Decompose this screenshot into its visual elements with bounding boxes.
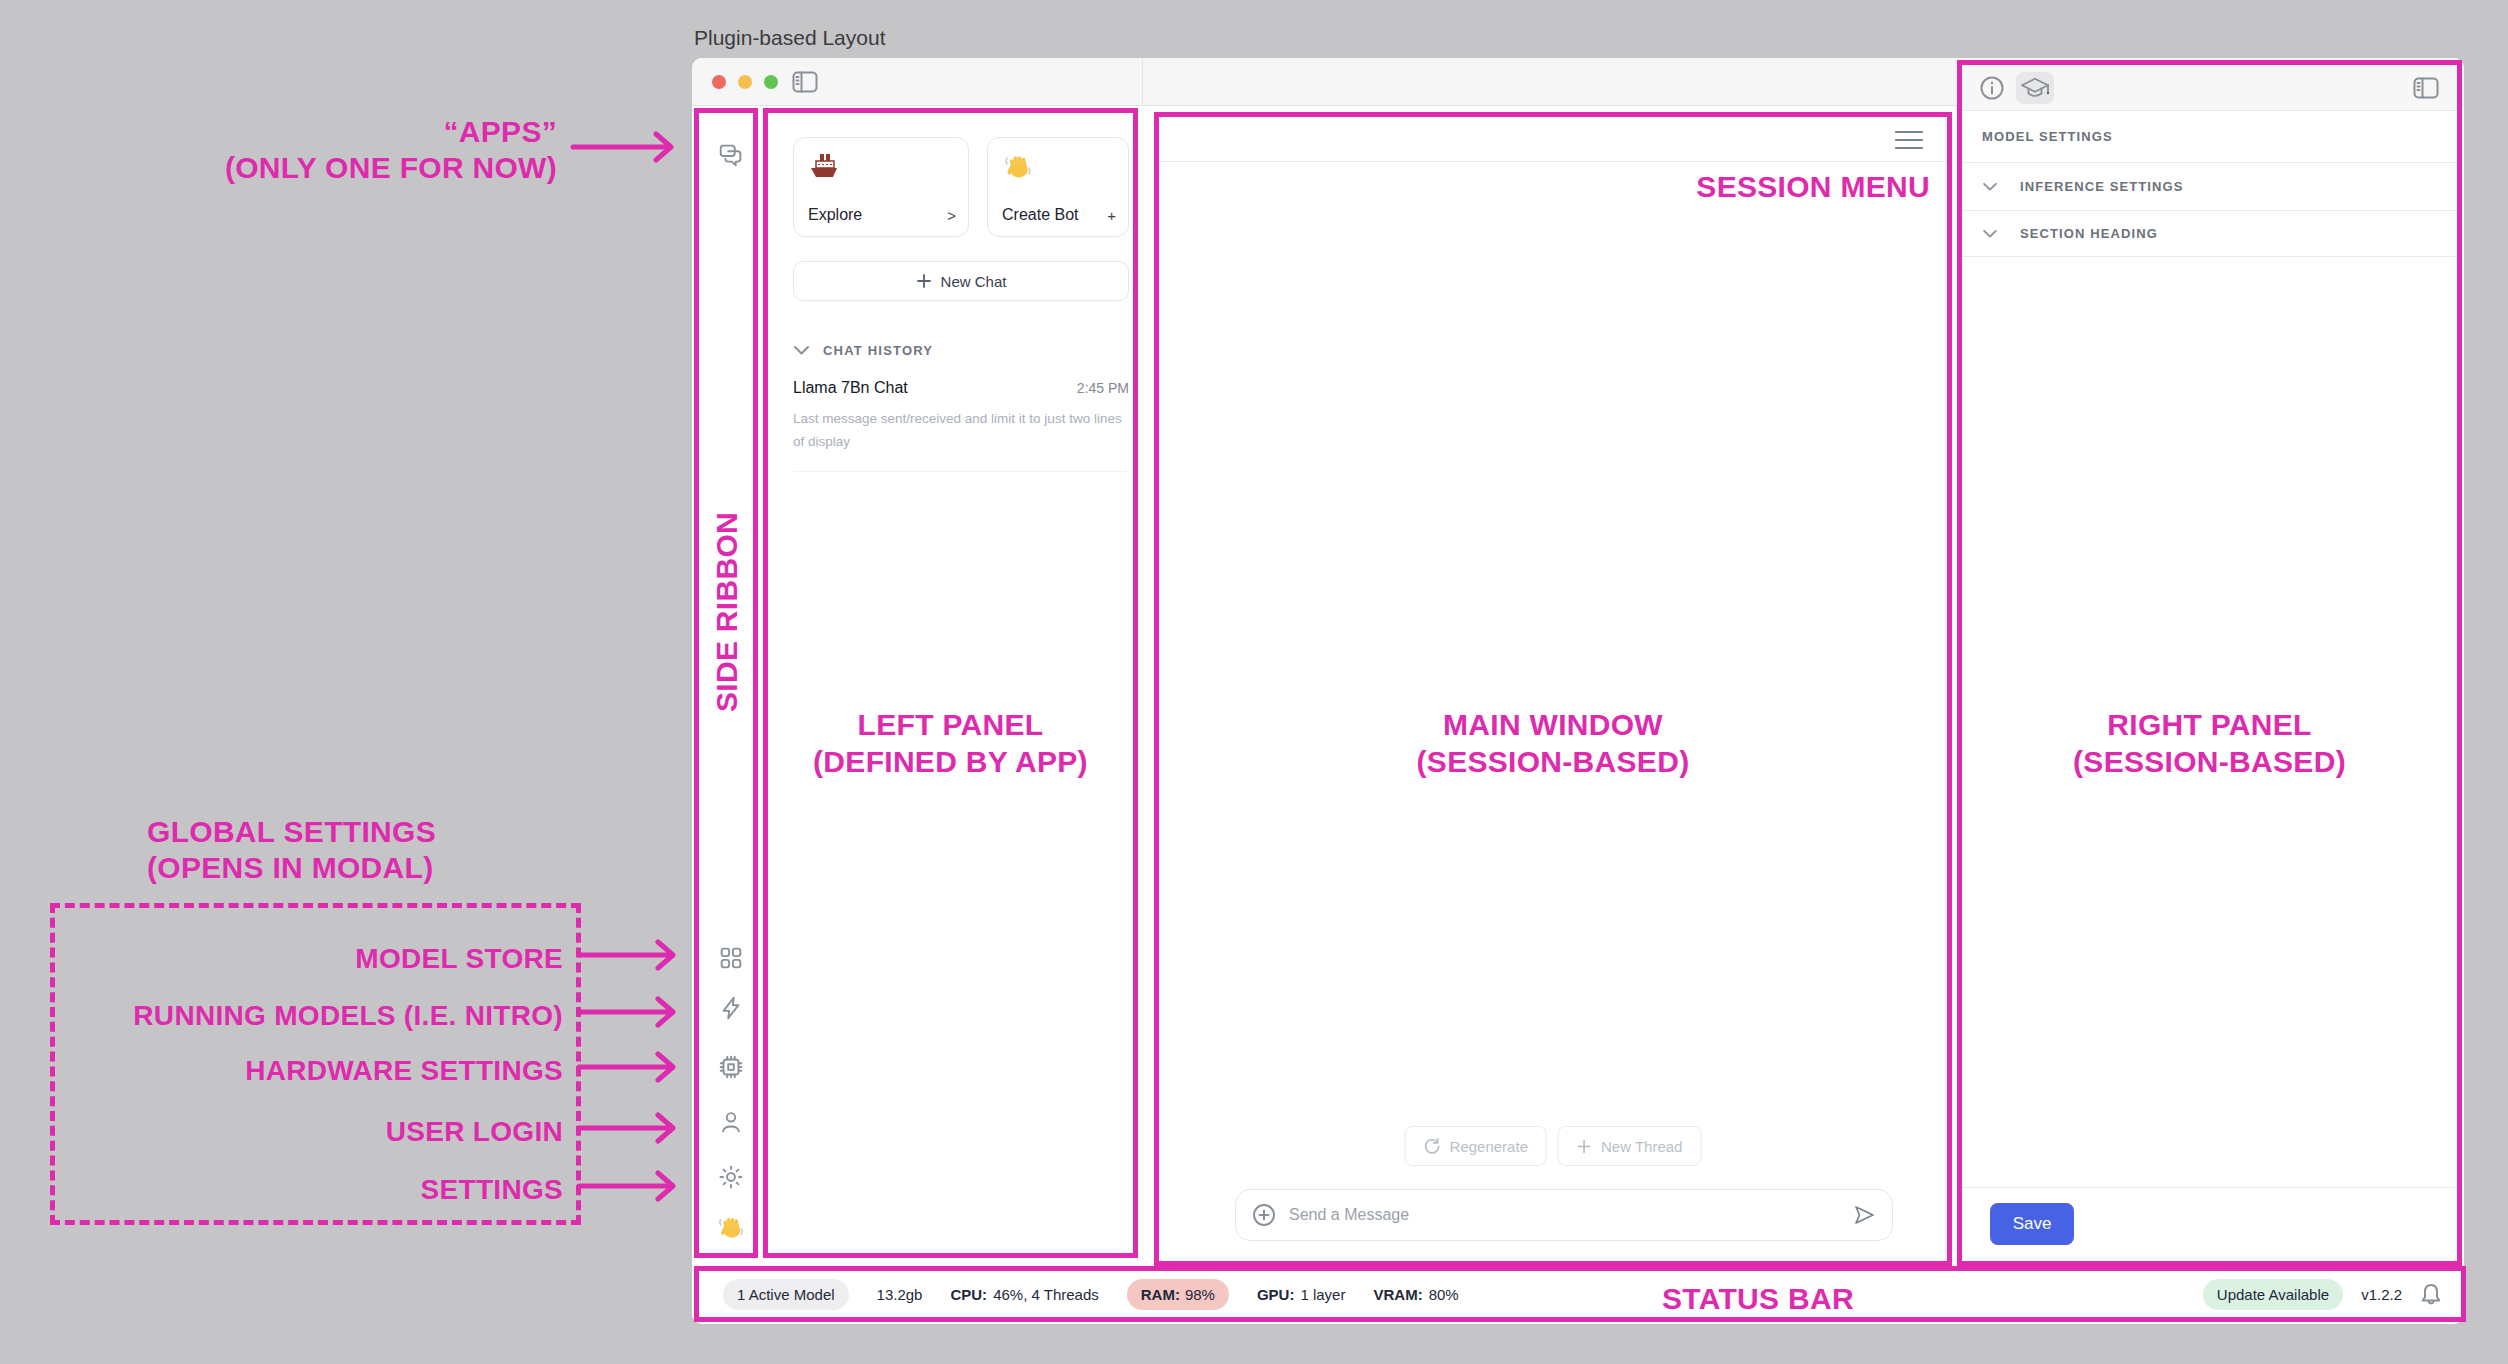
annotation-global-line2: (OPENS IN MODAL)	[147, 850, 436, 886]
new-thread-button[interactable]: New Thread	[1558, 1126, 1701, 1166]
send-icon[interactable]	[1852, 1203, 1876, 1227]
explore-card-label: Explore	[808, 206, 862, 224]
save-area-divider	[1962, 1187, 2457, 1188]
annotation-session-menu: SESSION MENU	[1696, 168, 1930, 205]
refresh-icon	[1424, 1138, 1441, 1155]
annotation-settings: SETTINGS	[421, 1171, 563, 1208]
create-bot-card-label: Create Bot	[1002, 206, 1078, 224]
main-window: Regenerate New Thread	[1154, 112, 1952, 1266]
titlebar-divider	[1142, 58, 1143, 106]
annotation-arrow-user-login	[576, 1112, 690, 1144]
annotation-right-panel: RIGHT PANEL (SESSION-BASED)	[1957, 706, 2462, 780]
cpu-label: CPU:	[950, 1286, 987, 1303]
main-header-divider	[1159, 161, 1947, 162]
save-button[interactable]: Save	[1990, 1203, 2074, 1245]
explore-card[interactable]: Explore >	[793, 137, 969, 237]
page-title: Plugin-based Layout	[694, 26, 885, 50]
annotation-left-panel-line2: (DEFINED BY APP)	[763, 743, 1138, 780]
version-label: v1.2.2	[2361, 1286, 2402, 1303]
annotation-user-login: USER LOGIN	[386, 1113, 563, 1150]
annotation-main-window-line1: MAIN WINDOW	[1154, 706, 1952, 743]
wave-emoji-icon[interactable]	[716, 1212, 746, 1242]
ram-badge: RAM: 98%	[1127, 1279, 1229, 1310]
attach-plus-icon[interactable]	[1252, 1203, 1276, 1227]
chat-item-preview: Last message sent/received and limit it …	[793, 407, 1129, 453]
info-icon[interactable]	[1979, 75, 2005, 101]
model-settings-section: MODEL SETTINGS	[1962, 111, 2457, 163]
chevron-down-icon	[793, 345, 810, 356]
gpu-value: 1 layer	[1300, 1286, 1345, 1303]
close-traffic-light[interactable]	[712, 75, 726, 89]
section-heading-row[interactable]: SECTION HEADING	[1962, 211, 2457, 257]
section-heading-label: SECTION HEADING	[2020, 226, 2158, 241]
regenerate-label: Regenerate	[1450, 1138, 1528, 1155]
user-login-icon[interactable]	[716, 1107, 746, 1137]
running-models-icon[interactable]	[716, 993, 746, 1023]
annotation-main-window: MAIN WINDOW (SESSION-BASED)	[1154, 706, 1952, 780]
vram-stat: VRAM: 80%	[1373, 1286, 1458, 1303]
cpu-value: 46%, 4 Threads	[993, 1286, 1099, 1303]
annotation-hardware-settings: HARDWARE SETTINGS	[245, 1052, 563, 1089]
design-canvas: Plugin-based Layout	[0, 0, 2508, 1364]
annotation-arrow-model-store	[576, 939, 690, 971]
list-divider	[793, 471, 1129, 472]
annotation-arrow-running-models	[576, 996, 690, 1028]
annotation-arrow-hardware	[576, 1051, 690, 1083]
annotation-main-window-line2: (SESSION-BASED)	[1154, 743, 1952, 780]
annotation-global-settings: GLOBAL SETTINGS (OPENS IN MODAL)	[147, 814, 436, 886]
plus-icon	[1577, 1139, 1592, 1154]
chat-app-icon[interactable]	[716, 140, 746, 170]
inference-settings-label: INFERENCE SETTINGS	[2020, 179, 2184, 194]
annotation-running-models: RUNNING MODELS (I.E. NITRO)	[133, 997, 563, 1034]
annotation-arrow-apps	[570, 131, 688, 163]
chat-history-header[interactable]: CHAT HISTORY	[793, 343, 933, 358]
sidebar-toggle-icon[interactable]	[792, 71, 818, 93]
maximize-traffic-light[interactable]	[764, 75, 778, 89]
chat-item-title: Llama 7Bn Chat	[793, 379, 908, 397]
message-input[interactable]	[1289, 1206, 1839, 1224]
settings-gear-icon[interactable]	[716, 1162, 746, 1192]
annotation-global-line1: GLOBAL SETTINGS	[147, 814, 436, 850]
ram-label: RAM:	[1141, 1286, 1180, 1303]
message-composer	[1235, 1189, 1893, 1241]
notifications-bell-icon[interactable]	[2420, 1282, 2442, 1306]
session-menu-icon[interactable]	[1895, 130, 1923, 150]
gpu-stat: GPU: 1 layer	[1257, 1286, 1346, 1303]
cpu-stat: CPU: 46%, 4 Threads	[950, 1286, 1098, 1303]
regenerate-button[interactable]: Regenerate	[1405, 1126, 1547, 1166]
active-model-badge[interactable]: 1 Active Model	[723, 1279, 849, 1310]
memory-usage: 13.2gb	[877, 1286, 923, 1303]
new-chat-button[interactable]: New Chat	[793, 261, 1129, 301]
right-panel-toggle-icon[interactable]	[2413, 77, 2439, 99]
annotation-model-store: MODEL STORE	[355, 940, 563, 977]
annotation-status-bar: STATUS BAR	[1662, 1280, 1854, 1317]
update-available-badge[interactable]: Update Available	[2203, 1279, 2343, 1310]
minimize-traffic-light[interactable]	[738, 75, 752, 89]
hardware-settings-icon[interactable]	[716, 1052, 746, 1082]
ship-emoji-icon	[808, 150, 840, 182]
annotation-right-panel-line1: RIGHT PANEL	[1957, 706, 2462, 743]
annotation-right-panel-line2: (SESSION-BASED)	[1957, 743, 2462, 780]
annotation-left-panel: LEFT PANEL (DEFINED BY APP)	[763, 706, 1138, 780]
annotation-side-ribbon: SIDE RIBBON	[708, 512, 745, 712]
left-panel: Explore > Create Bot +	[763, 108, 1138, 1258]
inference-settings-row[interactable]: INFERENCE SETTINGS	[1962, 163, 2457, 211]
wave-emoji-icon	[1002, 150, 1034, 182]
chevron-down-icon	[1982, 182, 1998, 192]
vram-value: 80%	[1429, 1286, 1459, 1303]
right-panel: MODEL SETTINGS INFERENCE SETTINGS SECTIO…	[1957, 60, 2462, 1266]
right-panel-header	[1962, 65, 2457, 111]
chat-history-label: CHAT HISTORY	[823, 343, 933, 358]
chevron-down-icon	[1982, 229, 1998, 239]
annotation-arrow-settings	[576, 1170, 690, 1202]
annotation-apps: “APPS” (ONLY ONE FOR NOW)	[225, 114, 557, 186]
new-chat-label: New Chat	[941, 273, 1007, 290]
gpu-label: GPU:	[1257, 1286, 1295, 1303]
annotation-left-panel-line1: LEFT PANEL	[763, 706, 1138, 743]
model-store-icon[interactable]	[716, 943, 746, 973]
model-settings-title: MODEL SETTINGS	[1982, 129, 2113, 144]
explore-card-chevron: >	[947, 207, 956, 224]
graduation-cap-icon[interactable]	[2020, 75, 2050, 101]
ram-value: 98%	[1185, 1286, 1215, 1303]
plus-icon	[916, 273, 932, 289]
chat-history-item[interactable]: Llama 7Bn Chat 2:45 PM Last message sent…	[793, 379, 1129, 453]
new-thread-label: New Thread	[1601, 1138, 1682, 1155]
status-bar: 1 Active Model 13.2gb CPU: 46%, 4 Thread…	[694, 1266, 2466, 1322]
create-bot-card-plus: +	[1107, 207, 1116, 224]
vram-label: VRAM:	[1373, 1286, 1422, 1303]
annotation-apps-line2: (ONLY ONE FOR NOW)	[225, 150, 557, 186]
annotation-apps-line1: “APPS”	[225, 114, 557, 150]
create-bot-card[interactable]: Create Bot +	[987, 137, 1129, 237]
chat-item-time: 2:45 PM	[1077, 380, 1129, 396]
